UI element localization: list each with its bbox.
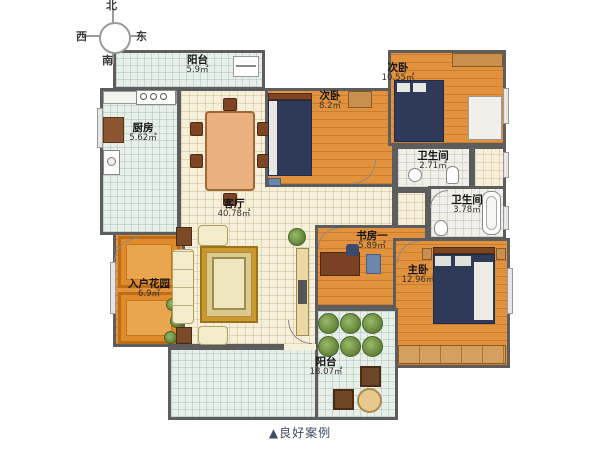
compass-north: 北 — [106, 0, 117, 13]
bed-blanket — [474, 262, 493, 320]
coffee-table — [212, 257, 246, 310]
plant-icon — [318, 336, 339, 357]
plant-icon — [362, 313, 383, 334]
sink-basin-icon — [107, 157, 116, 166]
toilet-icon — [434, 220, 448, 236]
burner-icon — [160, 93, 167, 100]
dining-chair — [223, 98, 237, 111]
plant-icon — [340, 336, 361, 357]
nightstand — [422, 248, 432, 260]
dining-chair — [190, 122, 203, 136]
armchair — [198, 326, 228, 345]
window-icon — [503, 88, 509, 124]
window-line — [236, 65, 256, 67]
label-study: 书房一 5.89㎡ — [336, 230, 408, 252]
plant-icon — [340, 313, 361, 334]
label-kitchen: 厨房 5.62㎡ — [112, 122, 174, 144]
compass-circle-icon — [99, 22, 131, 54]
round-pot — [357, 388, 382, 413]
label-master: 主卧 12.96㎡ — [394, 264, 442, 286]
plant-icon — [362, 336, 383, 357]
window-icon — [503, 206, 509, 230]
label-living: 客厅 40.78㎡ — [192, 198, 276, 220]
window-icon — [507, 268, 513, 314]
planter-box — [333, 389, 354, 410]
label-balcony-bottom: 阳台 18.07㎡ — [288, 356, 364, 378]
compass-west: 西 — [76, 28, 87, 44]
wardrobe — [452, 53, 503, 67]
armchair — [198, 225, 228, 246]
window-icon — [503, 152, 509, 178]
plant-icon — [288, 228, 306, 246]
dining-table — [205, 111, 255, 191]
caption: ▲良好案例 — [0, 424, 600, 441]
floor-plan: 阳台 5.9㎡ 厨房 5.62㎡ 次卧 8.2㎡ 次卧 10.55㎡ 卫生间 2… — [0, 0, 600, 450]
burner-icon — [150, 93, 157, 100]
bed-mattress-edge — [269, 101, 277, 175]
hallway-right — [472, 146, 506, 190]
pillow — [455, 256, 471, 266]
label-bedroom-right: 次卧 10.55㎡ — [362, 62, 434, 84]
label-balcony-top: 阳台 5.9㎡ — [160, 54, 235, 76]
label-bath-large: 卫生间 3.78㎡ — [432, 194, 502, 216]
closet — [468, 96, 502, 140]
nightstand — [268, 178, 281, 186]
label-entry-garden: 入户花园 6.9㎡ — [116, 278, 182, 300]
burner-icon — [140, 93, 147, 100]
end-table — [176, 327, 192, 344]
label-bath-small: 卫生间 2.71㎡ — [398, 150, 468, 172]
dining-chair — [190, 154, 203, 168]
compass-south: 南 — [102, 52, 113, 68]
pillow — [413, 83, 426, 92]
pillow — [397, 83, 410, 92]
window-icon — [97, 108, 103, 148]
door-opening — [284, 344, 316, 350]
bed-headboard — [433, 247, 495, 254]
wardrobe — [398, 345, 506, 364]
cabinet — [366, 254, 381, 274]
plant-icon — [318, 313, 339, 334]
label-bedroom-mid: 次卧 8.2㎡ — [298, 90, 362, 112]
compass-east: 东 — [136, 28, 147, 44]
nightstand — [496, 248, 506, 260]
end-table — [176, 227, 192, 246]
tv-icon — [298, 280, 307, 304]
